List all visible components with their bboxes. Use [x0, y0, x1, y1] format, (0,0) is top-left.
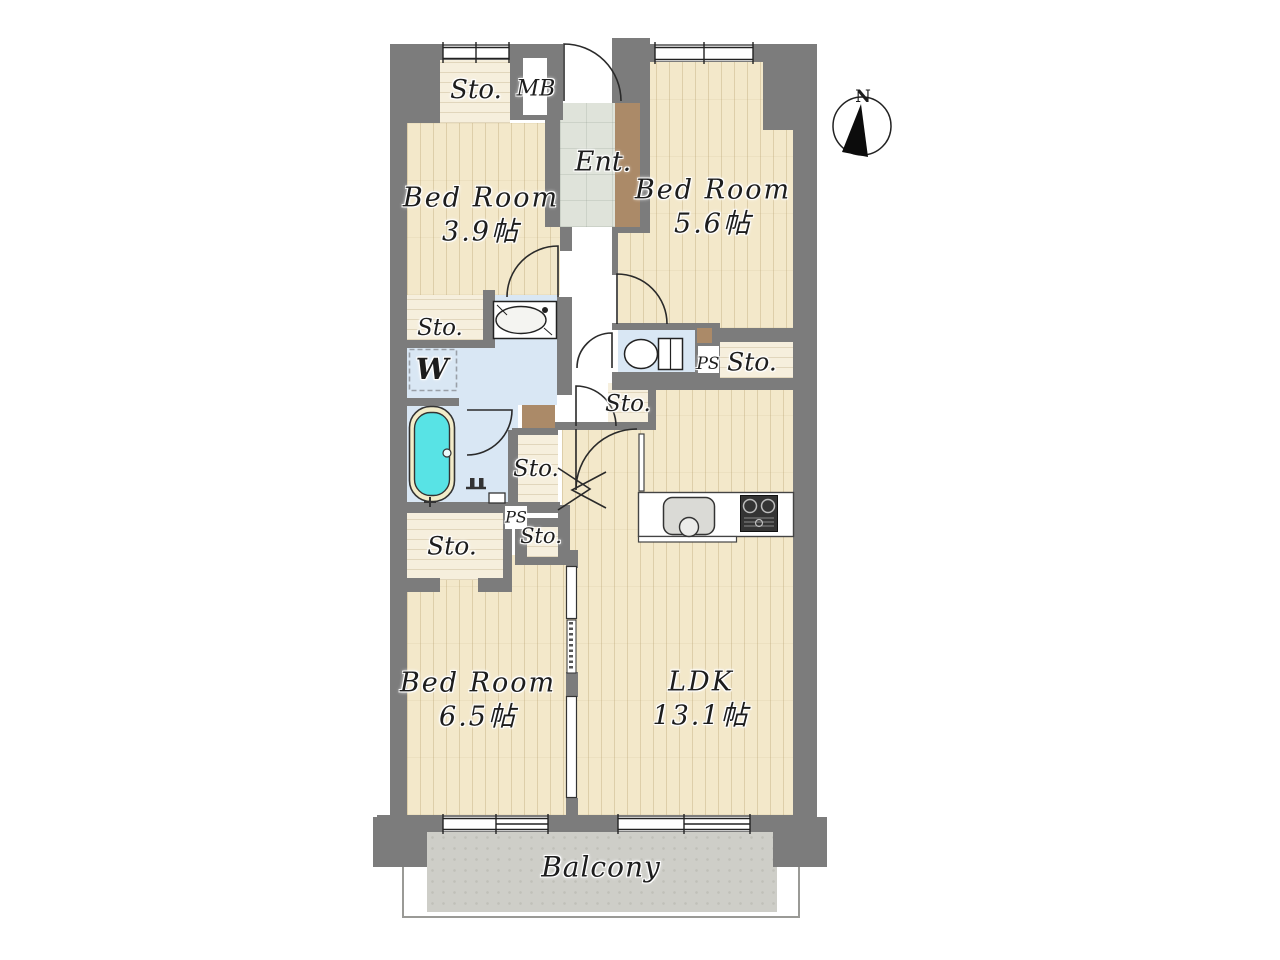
balcony-pillar: [773, 817, 827, 867]
wall-segment: [640, 103, 650, 233]
balcony-pillar: [373, 817, 427, 867]
wall-segment: [515, 557, 565, 565]
pipe-space-label: PS: [696, 354, 719, 374]
wall-segment: [390, 44, 407, 832]
bedroom-6-5-size: 6.5帖: [439, 695, 517, 734]
storage-label: Sto.: [520, 524, 562, 548]
floor-plan: Sto. MB Ent. Bed Room 3.9帖 Bed Room 5.6帖…: [0, 0, 1280, 960]
wall-segment: [566, 672, 578, 697]
wall-segment: [407, 398, 459, 406]
wall-segment: [712, 328, 793, 342]
floor-ldk: [562, 390, 793, 815]
wall-segment: [612, 372, 720, 390]
wall-segment: [407, 578, 440, 592]
storage-label: Sto.: [417, 315, 463, 341]
storage-label: Sto.: [605, 391, 651, 417]
wall-segment: [566, 550, 578, 568]
wall-segment: [712, 378, 793, 390]
floor-toilet: [618, 330, 695, 378]
storage-label: Sto.: [427, 532, 477, 561]
compass-north-label: N: [855, 87, 871, 107]
wall-segment: [407, 340, 487, 348]
storage-label: Sto.: [513, 456, 559, 482]
bedroom-5-6-size: 5.6帖: [674, 202, 752, 241]
storage-label: Sto.: [727, 348, 777, 377]
washing-machine-label: W: [416, 352, 449, 386]
wall-segment: [560, 227, 572, 251]
wall-segment: [557, 297, 572, 395]
wall-segment: [612, 38, 650, 103]
meter-box-label: MB: [517, 77, 556, 102]
wall-segment: [377, 815, 817, 832]
floor-bathroom: [407, 398, 518, 505]
wall-segment: [512, 428, 558, 435]
wall-segment: [566, 798, 578, 815]
wall-segment: [793, 44, 817, 832]
wall-segment: [612, 227, 618, 275]
ldk-size: 13.1帖: [652, 694, 749, 733]
wall-segment: [403, 502, 560, 513]
entrance-label: Ent.: [575, 147, 632, 178]
cabinet-panel: [522, 405, 555, 428]
wall-segment: [555, 422, 656, 430]
storage-label: Sto.: [450, 75, 502, 105]
cabinet-panel: [697, 328, 712, 343]
wall-segment: [390, 44, 440, 123]
wall-segment: [478, 578, 512, 592]
bedroom-3-9-size: 3.9帖: [442, 210, 520, 249]
balcony-label: Balcony: [541, 851, 661, 884]
